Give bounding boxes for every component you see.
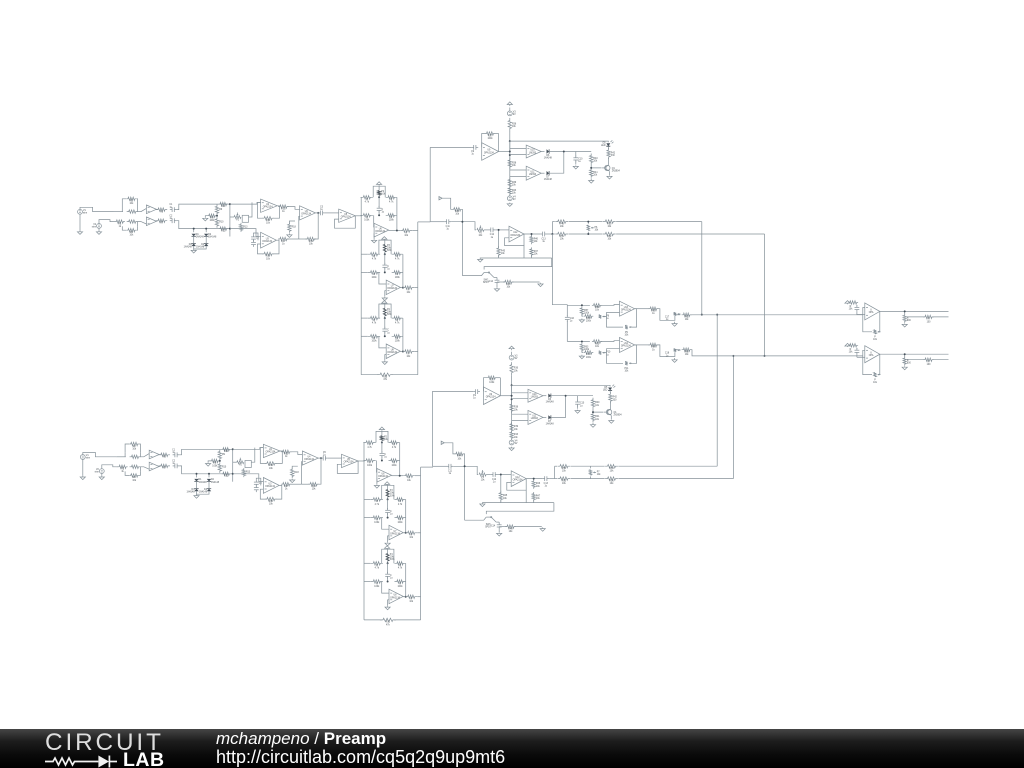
svg-text:1u: 1u [387, 268, 390, 270]
svg-text:1N4148: 1N4148 [184, 246, 193, 248]
svg-text:47k: 47k [386, 624, 391, 626]
svg-text:10k: 10k [534, 254, 539, 256]
svg-text:1u: 1u [320, 209, 323, 211]
svg-text:9V: 9V [515, 443, 518, 445]
svg-text:10k: 10k [512, 126, 517, 128]
svg-text:10k: 10k [409, 537, 414, 539]
svg-text:1u: 1u [390, 514, 393, 516]
svg-text:10k: 10k [514, 409, 519, 411]
svg-text:R7: R7 [160, 223, 164, 225]
svg-text:1N4148: 1N4148 [208, 237, 217, 239]
svg-text:OPA2134: OPA2134 [390, 596, 401, 599]
svg-text:R12: R12 [224, 476, 229, 478]
svg-text:1N4148: 1N4148 [544, 158, 553, 160]
svg-text:R6: R6 [160, 211, 164, 213]
svg-text:1u: 1u [493, 481, 496, 483]
svg-text:1N4148: 1N4148 [196, 246, 205, 248]
svg-text:10k: 10k [593, 161, 598, 163]
svg-text:10k: 10k [685, 354, 690, 356]
svg-text:10k: 10k [514, 429, 519, 431]
svg-text:10k: 10k [407, 356, 412, 358]
svg-text:100k: 100k [395, 341, 401, 343]
svg-text:1u: 1u [387, 332, 390, 334]
svg-text:10k: 10k [269, 504, 274, 506]
svg-text:LM393: LM393 [531, 418, 539, 420]
svg-text:U8: U8 [394, 595, 398, 597]
svg-text:9V: 9V [513, 199, 516, 201]
svg-text:LM393: LM393 [529, 174, 537, 176]
svg-text:10k: 10k [607, 226, 612, 228]
svg-text:10k: 10k [479, 235, 484, 237]
svg-text:OPA: OPA [869, 354, 874, 357]
svg-text:10k: 10k [849, 309, 854, 311]
svg-text:1u: 1u [446, 229, 449, 231]
svg-text:R18: R18 [294, 472, 299, 474]
svg-text:10k: 10k [132, 480, 137, 482]
svg-text:OPA2134: OPA2134 [266, 451, 277, 454]
svg-text:47k: 47k [383, 379, 388, 381]
svg-text:100k: 100k [398, 586, 404, 588]
svg-text:10k: 10k [501, 253, 506, 255]
svg-text:1N4148: 1N4148 [546, 423, 555, 425]
svg-text:LED: LED [603, 389, 608, 391]
svg-text:R10: R10 [219, 221, 224, 223]
svg-text:1u: 1u [390, 578, 393, 580]
svg-text:10k: 10k [607, 238, 612, 240]
svg-text:100k: 100k [489, 382, 495, 384]
svg-text:R10: R10 [222, 467, 227, 469]
svg-text:1N4148: 1N4148 [544, 179, 553, 181]
svg-text:1k: 1k [119, 226, 122, 228]
svg-text:10k: 10k [512, 185, 517, 187]
svg-text:100k: 100k [392, 465, 398, 467]
svg-text:OPA2134: OPA2134 [486, 396, 497, 399]
svg-text:330: 330 [613, 399, 618, 401]
svg-text:10k: 10k [595, 405, 600, 407]
svg-text:600: 600 [907, 320, 912, 322]
svg-text:1u: 1u [580, 405, 583, 407]
svg-text:10k: 10k [593, 175, 598, 177]
svg-text:100k: 100k [364, 220, 370, 222]
svg-text:10k: 10k [562, 483, 567, 485]
svg-text:100k: 100k [398, 522, 404, 524]
svg-text:OPA2134: OPA2134 [378, 475, 389, 478]
svg-text:10k: 10k [312, 489, 317, 491]
svg-text:1u: 1u [384, 457, 387, 459]
svg-text:OPA2134: OPA2134 [301, 213, 312, 216]
svg-text:sine: sine [86, 458, 91, 460]
svg-text:50%: 50% [387, 250, 392, 252]
svg-text:330: 330 [611, 155, 616, 157]
svg-text:OPA2134: OPA2134 [484, 151, 495, 154]
svg-text:U8: U8 [391, 349, 395, 351]
svg-text:100: 100 [927, 364, 932, 366]
svg-text:LM393: LM393 [531, 397, 539, 399]
svg-text:100k: 100k [372, 277, 378, 279]
svg-text:4.7k: 4.7k [375, 504, 380, 506]
svg-text:OPA2134: OPA2134 [513, 478, 524, 481]
svg-text:10k: 10k [514, 437, 519, 439]
svg-text:100k: 100k [389, 220, 395, 222]
svg-text:R18: R18 [292, 227, 297, 229]
svg-text:1u: 1u [578, 161, 581, 163]
svg-text:100k: 100k [586, 357, 592, 359]
svg-text:10k: 10k [536, 486, 541, 488]
svg-text:1N4148: 1N4148 [186, 492, 195, 494]
svg-text:R11: R11 [221, 206, 226, 208]
svg-text:100: 100 [927, 321, 932, 323]
svg-text:1u: 1u [449, 473, 452, 475]
svg-text:10k: 10k [595, 310, 600, 312]
svg-text:10k: 10k [269, 468, 274, 470]
svg-text:50%: 50% [390, 559, 395, 561]
svg-text:LM393: LM393 [529, 152, 537, 154]
svg-text:4.7k: 4.7k [375, 568, 380, 570]
svg-text:100k: 100k [584, 349, 590, 351]
svg-text:OPA2134: OPA2134 [341, 216, 352, 219]
svg-text:1N4148: 1N4148 [199, 482, 208, 484]
svg-text:1k: 1k [121, 471, 124, 473]
svg-text:OPA2134: OPA2134 [387, 351, 398, 354]
svg-text:1N4148: 1N4148 [196, 237, 205, 239]
svg-text:C14: C14 [491, 525, 496, 527]
svg-text:4.7k: 4.7k [372, 259, 377, 261]
svg-text:10k: 10k [685, 319, 690, 321]
svg-text:4.7k: 4.7k [398, 568, 403, 570]
svg-text:P1: P1 [236, 219, 240, 221]
svg-text:10k: 10k [595, 419, 600, 421]
svg-text:10k: 10k [506, 286, 511, 288]
svg-text:10k: 10k [625, 371, 630, 373]
svg-text:100k: 100k [367, 465, 373, 467]
svg-text:OPA2134: OPA2134 [344, 461, 355, 464]
svg-text:OPA2134: OPA2134 [265, 485, 276, 488]
svg-text:10k: 10k [132, 448, 137, 450]
svg-text:10k: 10k [560, 226, 565, 228]
svg-text:100k: 100k [395, 277, 401, 279]
svg-text:4.7k: 4.7k [372, 323, 377, 325]
svg-text:1k: 1k [282, 243, 285, 245]
svg-text:1k: 1k [282, 211, 285, 213]
svg-text:100k: 100k [372, 341, 378, 343]
svg-text:OPA2134: OPA2134 [304, 458, 315, 461]
svg-text:10k: 10k [407, 292, 412, 294]
svg-text:4.7k: 4.7k [365, 202, 370, 204]
svg-text:10k: 10k [625, 334, 630, 336]
svg-text:10k: 10k [509, 531, 514, 533]
svg-text:10k: 10k [560, 238, 565, 240]
svg-text:10k: 10k [512, 165, 517, 167]
svg-text:R12: R12 [221, 230, 226, 232]
svg-text:10k: 10k [309, 243, 314, 245]
svg-text:R6: R6 [163, 457, 167, 459]
svg-text:4.7k: 4.7k [367, 447, 372, 449]
svg-text:2N3904: 2N3904 [612, 171, 621, 173]
svg-text:1u: 1u [542, 241, 545, 243]
svg-text:1k: 1k [285, 489, 288, 491]
svg-text:4.7k: 4.7k [392, 447, 397, 449]
svg-text:10k: 10k [610, 483, 615, 485]
svg-text:100k: 100k [374, 586, 380, 588]
svg-text:10k: 10k [455, 214, 460, 216]
svg-text:1u: 1u [382, 212, 385, 214]
svg-text:10k: 10k [407, 480, 412, 482]
svg-text:10k: 10k [130, 203, 135, 205]
svg-text:100k: 100k [374, 522, 380, 524]
svg-text:R13: R13 [243, 226, 248, 228]
svg-text:100k: 100k [584, 313, 590, 315]
svg-text:10k: 10k [266, 223, 271, 225]
svg-text:OPA2134: OPA2134 [510, 234, 521, 237]
svg-text:sine: sine [92, 227, 97, 229]
svg-text:10k: 10k [562, 471, 567, 473]
svg-text:4.7k: 4.7k [395, 259, 400, 261]
svg-text:2N3904: 2N3904 [614, 415, 623, 417]
svg-text:P1: P1 [239, 465, 243, 467]
svg-text:OPA2134: OPA2134 [262, 240, 273, 243]
svg-text:100k: 100k [488, 138, 494, 140]
svg-text:OPA2134: OPA2134 [621, 345, 632, 348]
svg-text:10k: 10k [597, 474, 602, 476]
svg-text:10k: 10k [534, 241, 539, 243]
svg-text:10k: 10k [595, 229, 600, 231]
svg-text:1N4148: 1N4148 [546, 402, 555, 404]
svg-text:1u: 1u [570, 321, 573, 323]
svg-text:1u: 1u [491, 237, 494, 239]
svg-text:1N4148: 1N4148 [211, 482, 220, 484]
svg-text:4.7k: 4.7k [398, 504, 403, 506]
svg-text:OPA2134: OPA2134 [387, 287, 398, 290]
svg-text:OPA2134: OPA2134 [621, 309, 632, 312]
svg-text:4.7k: 4.7k [395, 323, 400, 325]
svg-text:10k: 10k [512, 193, 517, 195]
svg-text:10k: 10k [595, 346, 600, 348]
svg-text:R9: R9 [219, 209, 223, 211]
svg-text:1u: 1u [473, 398, 476, 400]
svg-text:R9: R9 [222, 454, 226, 456]
svg-text:sine: sine [83, 212, 88, 214]
svg-text:R11: R11 [224, 451, 229, 453]
svg-text:10k: 10k [514, 370, 519, 372]
svg-text:LED: LED [601, 145, 606, 147]
svg-text:10k: 10k [503, 498, 508, 500]
svg-text:10k: 10k [404, 235, 409, 237]
svg-text:9V: 9V [513, 114, 516, 116]
svg-text:1u: 1u [471, 153, 474, 155]
svg-text:R7: R7 [163, 468, 167, 470]
svg-text:10k: 10k [458, 458, 463, 460]
svg-text:10k: 10k [266, 258, 271, 260]
svg-text:10k: 10k [409, 601, 414, 603]
svg-text:4.7k: 4.7k [389, 202, 394, 204]
svg-text:sine: sine [95, 472, 100, 474]
svg-text:100k: 100k [586, 321, 592, 323]
svg-text:50%: 50% [390, 495, 395, 497]
svg-text:1N4148: 1N4148 [199, 492, 208, 494]
svg-text:1u: 1u [323, 454, 326, 456]
svg-text:10k: 10k [873, 339, 878, 341]
svg-text:1k: 1k [652, 313, 655, 315]
svg-text:10k: 10k [610, 471, 615, 473]
svg-text:OPA2134: OPA2134 [390, 532, 401, 535]
svg-text:10k: 10k [481, 480, 486, 482]
svg-text:C14: C14 [489, 281, 494, 283]
svg-text:OPA2134: OPA2134 [263, 206, 274, 209]
svg-text:1u: 1u [545, 486, 548, 488]
svg-text:50%: 50% [387, 314, 392, 316]
svg-text:OPA2134: OPA2134 [375, 230, 386, 233]
svg-text:600: 600 [907, 363, 912, 365]
svg-text:10k: 10k [536, 498, 541, 500]
svg-text:R13: R13 [246, 472, 251, 474]
svg-text:OPA: OPA [869, 311, 874, 314]
svg-text:10k: 10k [849, 351, 854, 353]
svg-text:1k: 1k [285, 456, 288, 458]
svg-text:10k: 10k [873, 382, 878, 384]
svg-text:10k: 10k [130, 235, 135, 237]
svg-text:1k: 1k [652, 349, 655, 351]
svg-text:9V: 9V [515, 358, 518, 360]
svg-text:LAB: LAB [123, 749, 165, 768]
